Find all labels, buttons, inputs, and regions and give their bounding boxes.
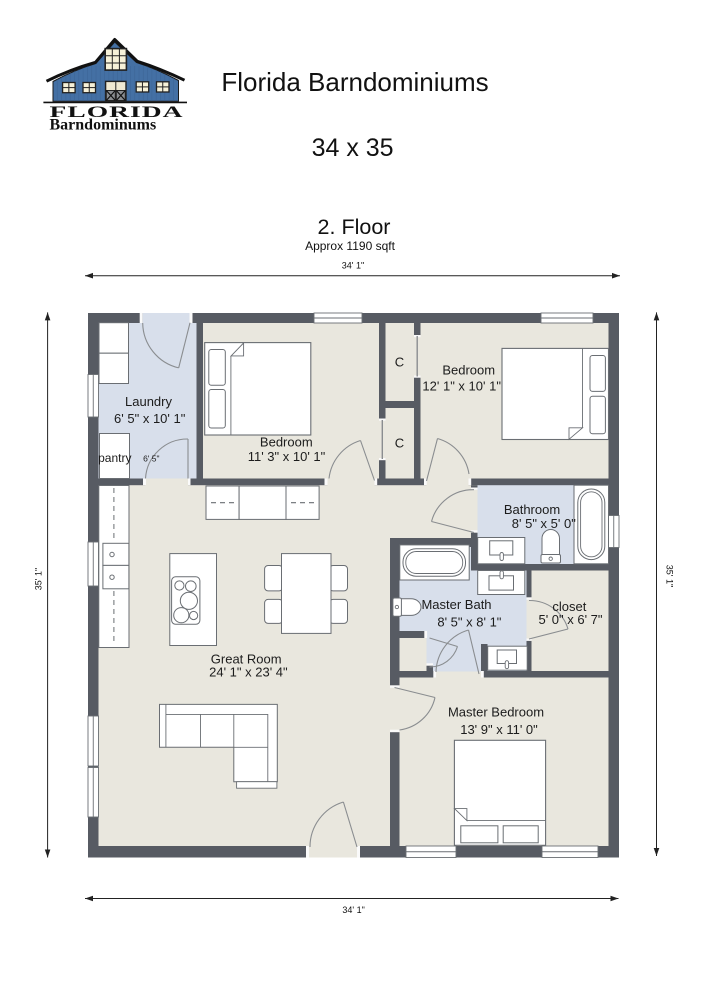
svg-text:34 x 35: 34 x 35 <box>312 134 394 162</box>
svg-text:11' 3" x 10' 1": 11' 3" x 10' 1" <box>248 449 326 464</box>
svg-text:Bedroom: Bedroom <box>260 435 313 450</box>
svg-text:Bathroom: Bathroom <box>504 502 560 517</box>
svg-text:Barndominums: Barndominums <box>50 117 157 134</box>
svg-text:12' 1" x 10' 1": 12' 1" x 10' 1" <box>422 379 501 394</box>
svg-text:Laundry: Laundry <box>125 394 172 409</box>
svg-text:Master Bath: Master Bath <box>421 597 491 612</box>
svg-text:35' 1": 35' 1" <box>34 568 44 590</box>
svg-text:6' 5": 6' 5" <box>143 454 159 464</box>
svg-text:C: C <box>395 355 404 370</box>
svg-text:Master Bedroom: Master Bedroom <box>448 705 544 720</box>
svg-text:8' 5" x 8' 1": 8' 5" x 8' 1" <box>437 615 501 630</box>
svg-text:34' 1": 34' 1" <box>342 261 364 271</box>
svg-text:6' 5" x 10' 1": 6' 5" x 10' 1" <box>114 411 186 426</box>
svg-text:35' 1": 35' 1" <box>665 565 675 587</box>
svg-text:24' 1" x 23' 4": 24' 1" x 23' 4" <box>209 665 288 680</box>
svg-text:13' 9" x 11' 0": 13' 9" x 11' 0" <box>460 722 538 737</box>
svg-text:Bedroom: Bedroom <box>442 363 495 378</box>
svg-text:Florida Barndominiums: Florida Barndominiums <box>221 67 488 97</box>
svg-text:2. Floor: 2. Floor <box>318 215 391 239</box>
svg-text:5' 0" x 6' 7": 5' 0" x 6' 7" <box>538 612 602 627</box>
svg-text:C: C <box>395 436 404 451</box>
svg-text:Approx 1190 sqft: Approx 1190 sqft <box>305 239 396 253</box>
svg-text:34' 1": 34' 1" <box>342 905 364 915</box>
svg-text:pantry: pantry <box>98 451 131 465</box>
svg-text:8' 5" x 5' 0": 8' 5" x 5' 0" <box>512 516 576 531</box>
